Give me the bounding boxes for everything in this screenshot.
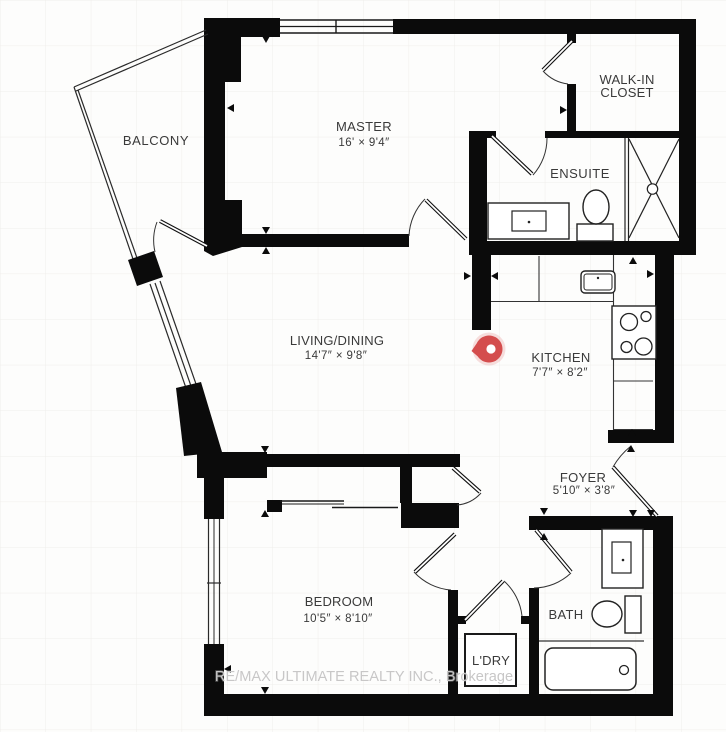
svg-text:14'7″ × 9'8″: 14'7″ × 9'8″ — [305, 350, 367, 362]
svg-text:7'7″ × 8'2″: 7'7″ × 8'2″ — [532, 367, 588, 379]
svg-text:KITCHEN: KITCHEN — [531, 350, 590, 365]
svg-text:BALCONY: BALCONY — [123, 133, 189, 148]
svg-text:L'DRY: L'DRY — [472, 653, 510, 668]
svg-text:CLOSET: CLOSET — [600, 85, 653, 100]
svg-text:16' × 9'4″: 16' × 9'4″ — [338, 137, 389, 149]
svg-text:BEDROOM: BEDROOM — [305, 594, 374, 609]
svg-text:MASTER: MASTER — [336, 119, 392, 134]
svg-text:10'5″ × 8'10″: 10'5″ × 8'10″ — [303, 613, 372, 625]
svg-text:BATH: BATH — [549, 607, 584, 622]
svg-text:ENSUITE: ENSUITE — [550, 166, 610, 181]
svg-text:RE/MAX ULTIMATE REALTY INC., B: RE/MAX ULTIMATE REALTY INC., Brokerage — [215, 669, 513, 685]
svg-text:5'10″ × 3'8″: 5'10″ × 3'8″ — [553, 485, 615, 497]
svg-text:FOYER: FOYER — [560, 470, 606, 485]
svg-text:LIVING/DINING: LIVING/DINING — [290, 333, 384, 348]
